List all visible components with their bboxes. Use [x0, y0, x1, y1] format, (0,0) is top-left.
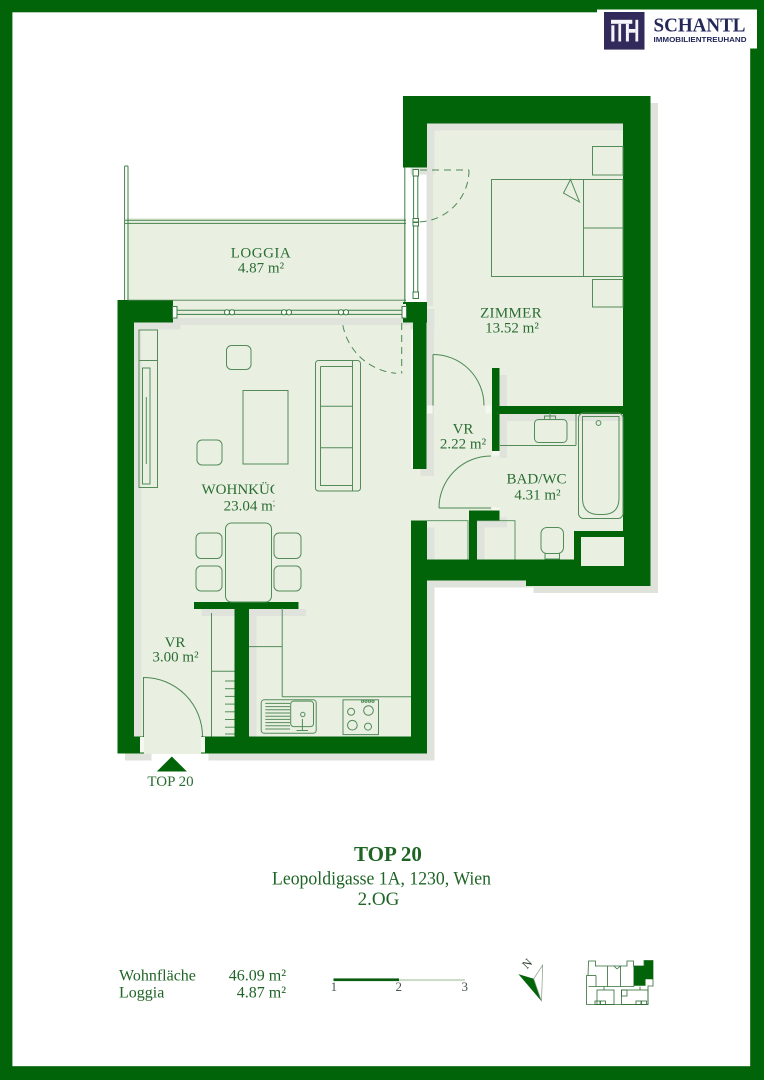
svg-text:3.00 m²: 3.00 m² — [152, 650, 199, 666]
svg-text:ZIMMER: ZIMMER — [480, 305, 542, 321]
svg-text:VR: VR — [453, 422, 474, 438]
svg-text:46.09 m²: 46.09 m² — [229, 968, 286, 985]
svg-text:LOGGIA: LOGGIA — [231, 246, 292, 262]
svg-text:BAD/WC: BAD/WC — [507, 472, 567, 488]
svg-text:Wohnfläche: Wohnfläche — [119, 968, 196, 985]
svg-text:4.31 m²: 4.31 m² — [514, 488, 561, 504]
svg-text:IMMOBILIENTREUHAND: IMMOBILIENTREUHAND — [654, 35, 748, 44]
svg-text:2.22 m²: 2.22 m² — [440, 437, 487, 453]
svg-text:Loggia: Loggia — [119, 985, 164, 1002]
svg-text:23.04 m²: 23.04 m² — [224, 499, 278, 515]
svg-text:4.87 m²: 4.87 m² — [237, 985, 286, 1002]
svg-text:TOP 20: TOP 20 — [354, 842, 422, 866]
svg-text:2: 2 — [396, 979, 403, 994]
svg-text:1: 1 — [331, 979, 338, 994]
svg-text:4.87 m²: 4.87 m² — [238, 261, 285, 277]
svg-text:2.OG: 2.OG — [358, 889, 400, 910]
svg-text:3: 3 — [462, 979, 469, 994]
svg-text:TOP 20: TOP 20 — [147, 774, 193, 790]
svg-text:13.52 m²: 13.52 m² — [485, 321, 539, 337]
svg-text:Leopoldigasse 1A, 1230, Wien: Leopoldigasse 1A, 1230, Wien — [272, 870, 491, 890]
svg-text:SCHANTL: SCHANTL — [654, 16, 746, 37]
